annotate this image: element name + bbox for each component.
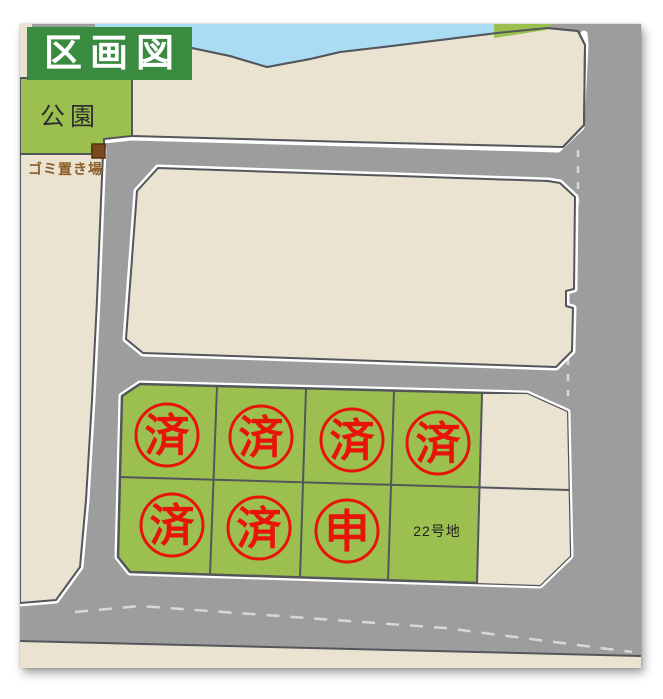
parcel-central xyxy=(126,168,575,367)
park-label: 公園 xyxy=(40,103,100,131)
subdivision-map-card: 区画図 公園 ゴミ置き場 済 済 済 済 済 済 xyxy=(20,24,641,668)
stamp-r1c4: 済 xyxy=(415,419,461,469)
garbage-station-marker xyxy=(92,144,105,158)
stamp-r1c1: 済 xyxy=(144,411,190,461)
stamp-r2c3: 申 xyxy=(324,507,369,557)
garbage-area-label: ゴミ置き場 xyxy=(28,161,103,177)
parcel-central-block xyxy=(126,168,575,367)
subdivision-map-svg: 区画図 公園 ゴミ置き場 済 済 済 済 済 済 xyxy=(20,24,641,668)
map-title-box: 区画図 xyxy=(27,27,192,80)
page-title: 区画図 xyxy=(44,33,182,75)
stamp-r2c1: 済 xyxy=(149,501,195,551)
stamp-r1c2: 済 xyxy=(238,413,284,463)
page: 区画図 公園 ゴミ置き場 済 済 済 済 済 済 xyxy=(0,0,663,699)
stamp-r1c3: 済 xyxy=(329,416,375,466)
lot-22-label: 22号地 xyxy=(413,523,461,539)
stamp-r2c2: 済 xyxy=(236,504,282,554)
